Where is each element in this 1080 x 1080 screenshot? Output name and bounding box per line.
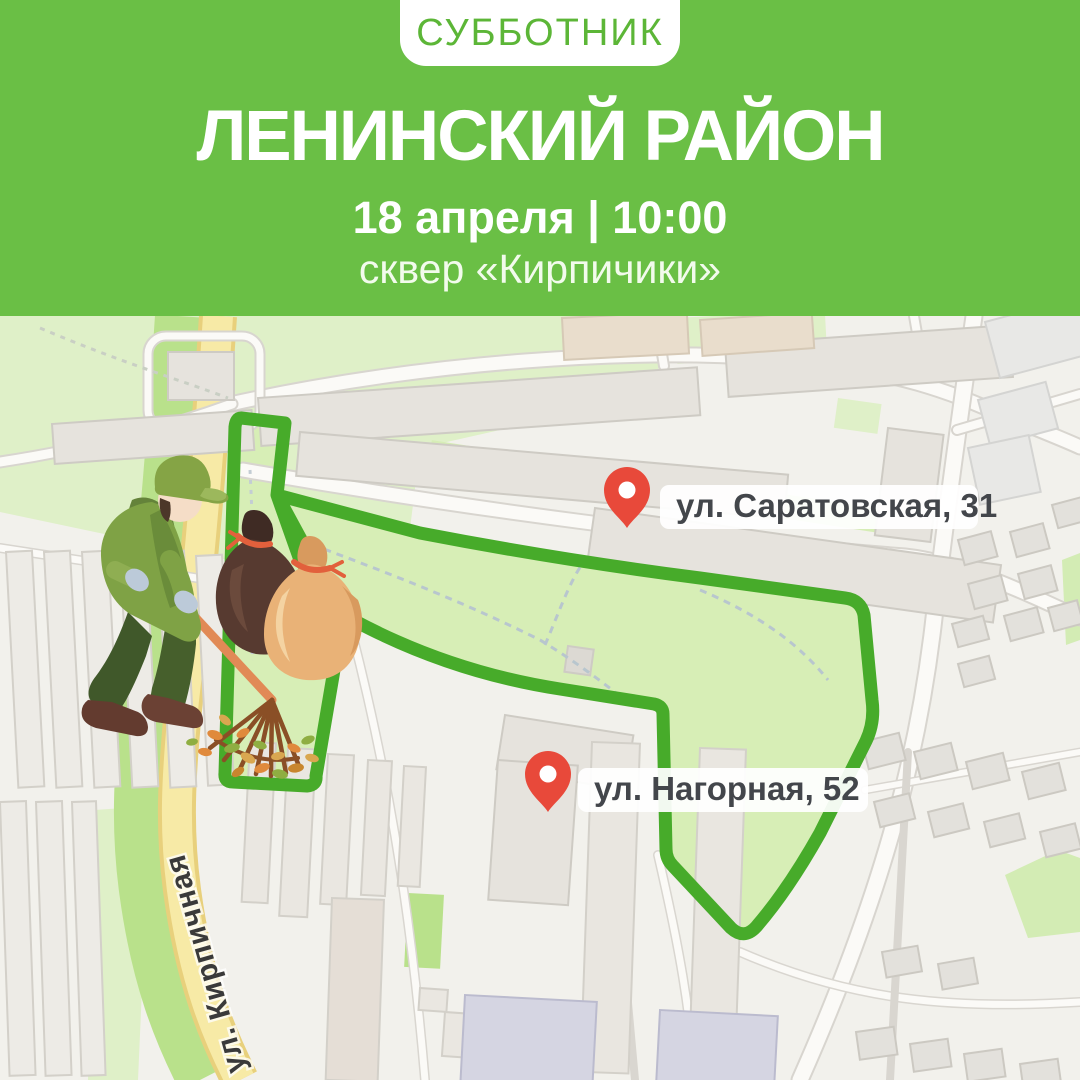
event-location: сквер «Кирпичики» — [0, 246, 1080, 293]
district-title: ЛЕНИНСКИЙ РАЙОН — [0, 96, 1080, 177]
pin-label: ул. Нагорная, 52 — [594, 770, 860, 807]
badge-label: СУББОТНИК — [416, 12, 663, 55]
event-type-badge: СУББОТНИК — [400, 0, 680, 66]
event-datetime: 18 апреля | 10:00 — [0, 192, 1080, 244]
map-canvas: ул. Саратовская, 31 ул. Нагорная, 52 ул.… — [0, 316, 1080, 1080]
pin-label: ул. Саратовская, 31 — [676, 487, 997, 524]
header-banner: СУББОТНИК ЛЕНИНСКИЙ РАЙОН 18 апреля | 10… — [0, 0, 1080, 316]
